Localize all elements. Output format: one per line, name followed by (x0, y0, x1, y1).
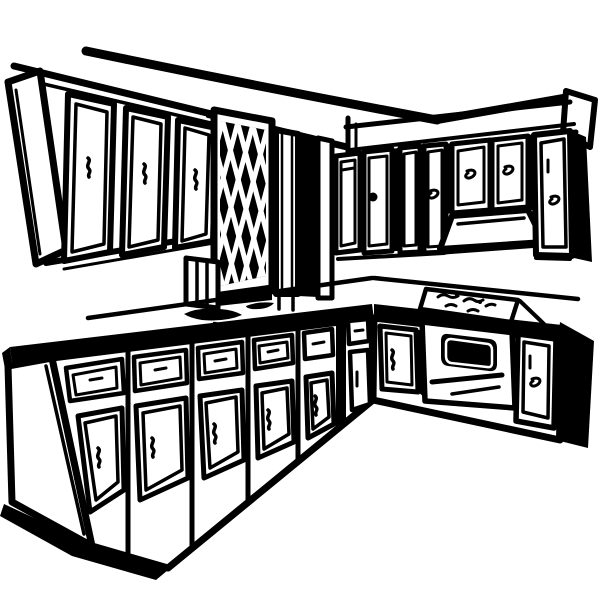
corner-shadow (336, 323, 346, 426)
right-side-panel (556, 322, 594, 448)
door-knob (369, 193, 378, 202)
upper-right-cabinets (336, 131, 592, 262)
cabinet-right-end (572, 131, 592, 262)
hood-cabinet-door-1 (452, 140, 490, 213)
lower-door-6 (350, 350, 370, 410)
hood-cabinet-door-2 (492, 136, 528, 210)
lower-door-4 (256, 381, 294, 458)
range-hood (440, 210, 544, 252)
corner-stile (318, 138, 332, 298)
lower-door-5 (306, 373, 334, 438)
upper-door-3 (175, 120, 216, 248)
recess-shadow (298, 134, 318, 297)
door-handle (88, 158, 90, 177)
pillar (276, 130, 298, 294)
lower-door-3 (200, 390, 244, 478)
upper-right-door-1 (336, 153, 360, 253)
upper-right-door-5 (534, 131, 572, 256)
upper-door-2 (122, 108, 168, 255)
lower-right-cabinets (373, 318, 594, 448)
right-end-door (516, 334, 556, 428)
right-corner-door (380, 326, 418, 392)
kitchen-line-art (0, 0, 600, 600)
door-handle (195, 170, 197, 189)
door-handle (144, 164, 146, 183)
oven (422, 321, 515, 408)
upper-right-door-2 (364, 149, 392, 253)
upper-door-1 (64, 94, 114, 261)
upper-right-door-3 (400, 146, 420, 253)
image-canvas (0, 0, 600, 600)
